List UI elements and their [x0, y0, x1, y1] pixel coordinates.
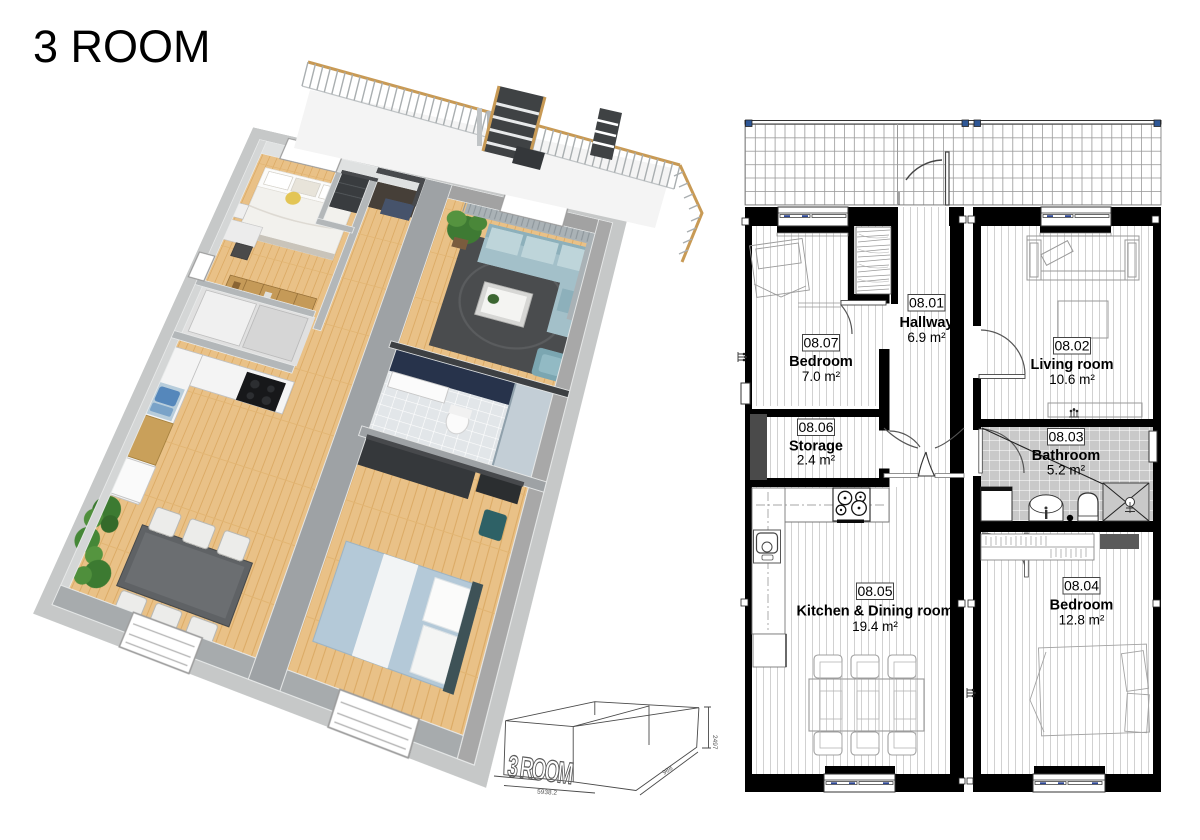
svg-text:7.0 m²: 7.0 m²	[802, 369, 841, 384]
svg-text:Hallway: Hallway	[900, 315, 954, 331]
svg-text:10.6 m²: 10.6 m²	[1049, 372, 1095, 387]
svg-text:08.04: 08.04	[1064, 578, 1099, 594]
svg-text:12.8 m²: 12.8 m²	[1059, 613, 1105, 628]
svg-text:08.01: 08.01	[909, 295, 944, 311]
svg-text:Bedroom: Bedroom	[789, 354, 853, 370]
svg-text:Bedroom: Bedroom	[1050, 598, 1114, 614]
svg-text:08.07: 08.07	[803, 335, 838, 351]
svg-text:Living room: Living room	[1031, 357, 1114, 373]
svg-text:Kitchen & Dining room: Kitchen & Dining room	[796, 604, 953, 620]
svg-text:08.03: 08.03	[1048, 429, 1083, 445]
svg-text:5.2 m²: 5.2 m²	[1047, 463, 1086, 478]
svg-text:08.02: 08.02	[1054, 338, 1089, 354]
svg-text:08.06: 08.06	[798, 419, 833, 435]
svg-text:6.9 m²: 6.9 m²	[907, 330, 946, 345]
svg-text:08.05: 08.05	[857, 583, 892, 599]
svg-text:2.4 m²: 2.4 m²	[797, 453, 836, 468]
svg-text:19.4 m²: 19.4 m²	[852, 619, 898, 634]
